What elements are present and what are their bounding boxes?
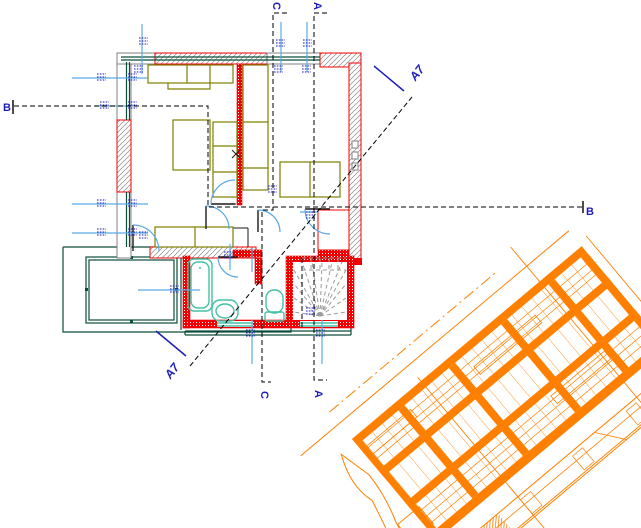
- section-label-c-bottom[interactable]: C: [258, 391, 270, 399]
- section-label-c-top[interactable]: C: [270, 2, 282, 10]
- bathroom-fixtures[interactable]: [188, 259, 284, 321]
- sink[interactable]: [212, 300, 238, 321]
- kitchen-counter[interactable]: [148, 65, 233, 83]
- wall-end-cap: [354, 258, 362, 265]
- top-right-window-band: [267, 53, 320, 64]
- bedroom-balcony[interactable]: [318, 210, 349, 258]
- section-label-a-top[interactable]: A: [311, 2, 323, 10]
- floor-plan[interactable]: [63, 22, 362, 364]
- sideboard[interactable]: [213, 122, 237, 197]
- left-wall-pier[interactable]: [117, 120, 131, 192]
- section-label-a-bottom[interactable]: A: [312, 390, 324, 398]
- detail-label-a7-lower[interactable]: A7: [161, 360, 183, 383]
- section-label-b-left[interactable]: B: [3, 102, 11, 114]
- dining-table[interactable]: [173, 120, 210, 170]
- section-body: [352, 246, 641, 528]
- cad-canvas: B B C A C A A7 A7: [0, 0, 641, 528]
- drawing-root: B B C A C A A7 A7: [0, 0, 641, 528]
- staircase[interactable]: [293, 258, 347, 330]
- bath-door[interactable]: [218, 257, 238, 277]
- top-wall[interactable]: [155, 53, 267, 64]
- furniture[interactable]: [148, 65, 340, 247]
- section-label-b-right[interactable]: B: [586, 206, 594, 218]
- detail-label-a7-upper[interactable]: A7: [406, 62, 428, 85]
- wc-door[interactable]: [258, 210, 280, 232]
- orange-reference-drawing[interactable]: [285, 180, 641, 528]
- wardrobe[interactable]: [243, 65, 268, 190]
- top-left-window-band: [117, 53, 155, 64]
- living-bedroom-partition[interactable]: [237, 64, 242, 205]
- bathtub[interactable]: [188, 259, 212, 311]
- sofa[interactable]: [155, 227, 233, 247]
- hall-door[interactable]: [206, 206, 229, 229]
- toilet[interactable]: [265, 290, 284, 321]
